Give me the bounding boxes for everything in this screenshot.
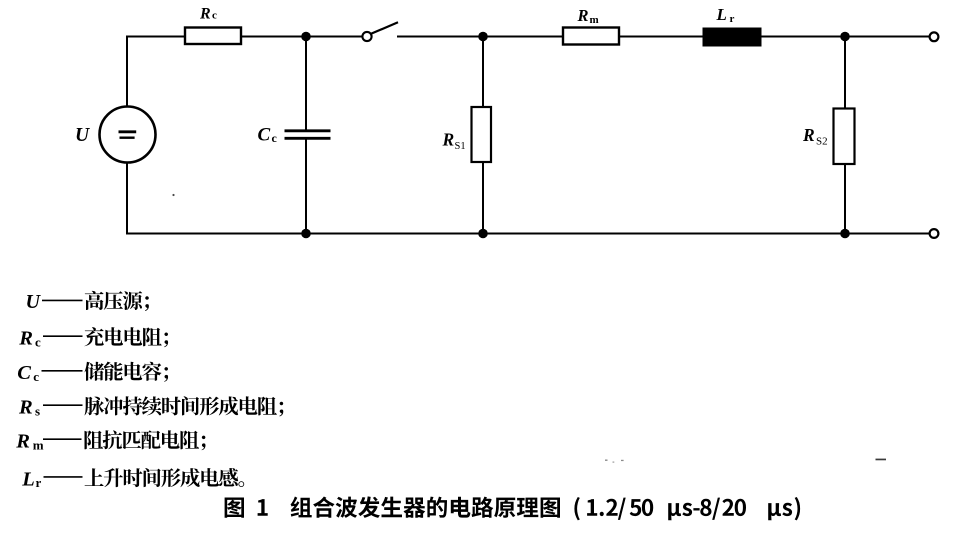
svg-text:C: C — [17, 362, 31, 384]
svg-text:c: c — [33, 369, 39, 384]
svg-text:c: c — [35, 335, 41, 350]
svg-text:R: R — [802, 125, 815, 145]
svg-text:s: s — [35, 404, 40, 419]
svg-text:m: m — [590, 14, 599, 26]
svg-text:R: R — [442, 130, 455, 150]
svg-text:S2: S2 — [816, 136, 828, 148]
svg-text:r: r — [730, 13, 735, 25]
svg-text:U: U — [75, 125, 90, 146]
svg-text:m: m — [33, 438, 44, 453]
svg-text:R: R — [577, 6, 589, 25]
svg-text:c: c — [212, 10, 217, 22]
svg-text:S1: S1 — [455, 141, 466, 152]
svg-text:R: R — [199, 6, 211, 23]
svg-text:L: L — [21, 468, 35, 490]
svg-text:R: R — [15, 431, 30, 453]
svg-text:R: R — [18, 397, 33, 419]
svg-text:R: R — [18, 327, 33, 349]
svg-text:C: C — [258, 124, 271, 145]
svg-text:U: U — [26, 291, 42, 313]
svg-text:L: L — [716, 5, 727, 24]
svg-text:r: r — [36, 475, 42, 490]
svg-text:c: c — [272, 131, 278, 145]
